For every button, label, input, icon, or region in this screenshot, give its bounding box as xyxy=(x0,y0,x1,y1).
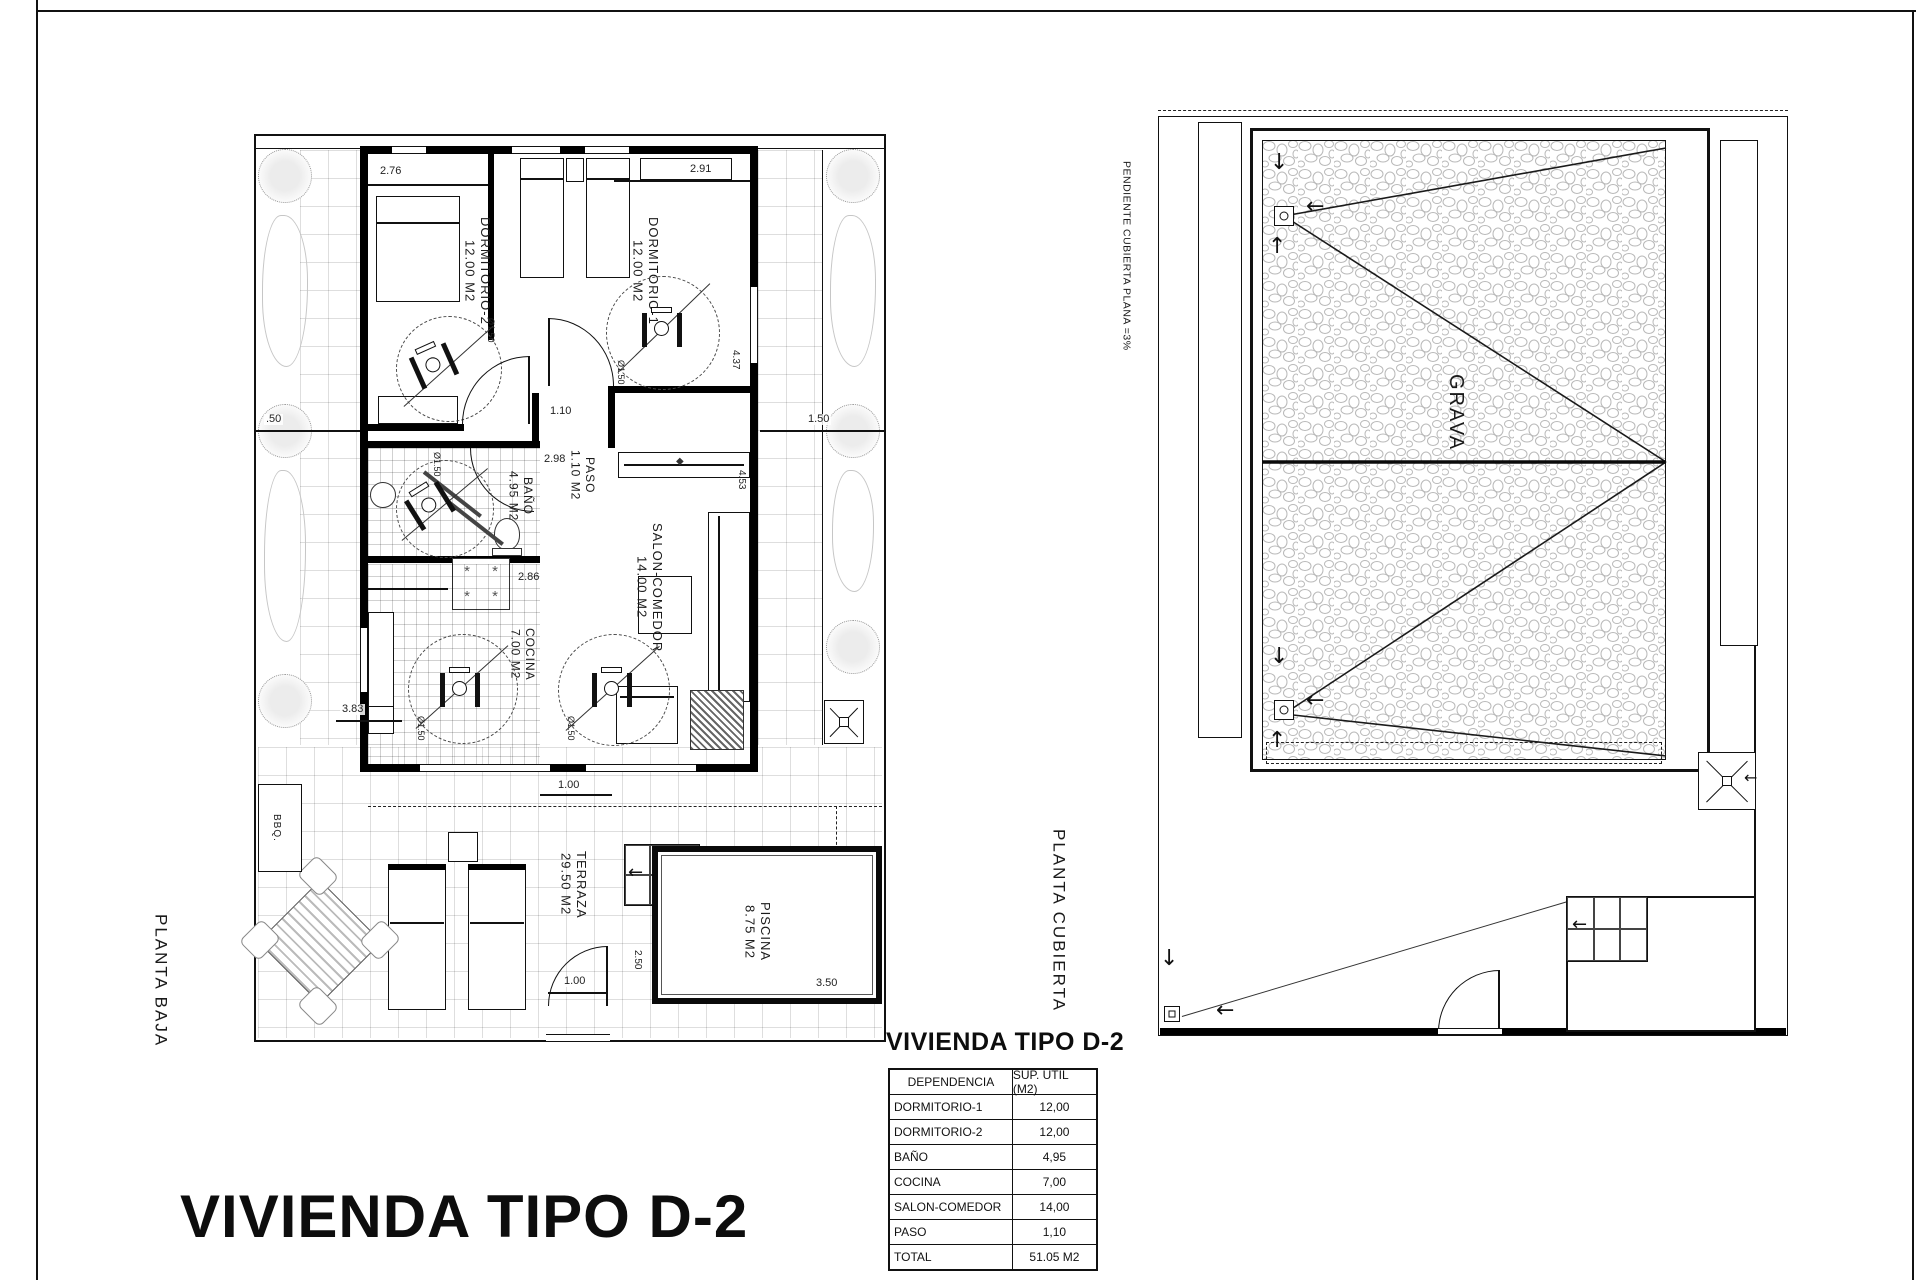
parapet-left xyxy=(1198,122,1242,738)
roof-overhang-dashed xyxy=(368,806,882,807)
dim-hall-len: 2.98 xyxy=(542,454,567,465)
frame-right xyxy=(1912,10,1914,1280)
plan-label-planta-cubierta: PLANTA CUBIERTA xyxy=(1048,826,1068,1016)
dim-paso-width: 1.10 xyxy=(548,406,573,417)
room-label-paso: PASO 1.10 M2 xyxy=(568,428,597,523)
door-leaf xyxy=(548,318,550,386)
dim-line xyxy=(760,430,884,432)
salon-sofa xyxy=(708,512,750,702)
sideboard-diamond-icon: ◆ xyxy=(676,456,684,467)
window xyxy=(392,146,426,154)
door-leaf xyxy=(528,356,530,424)
tree xyxy=(258,149,312,203)
dim-cocina-side: 3.83 xyxy=(340,704,365,715)
window xyxy=(586,764,696,772)
salon-plant xyxy=(690,690,744,750)
table-row: COCINA 7,00 xyxy=(890,1170,1096,1195)
dim-pool-side: 2.50 xyxy=(632,950,642,969)
garden-path-right xyxy=(758,150,822,745)
wall-bano-top xyxy=(368,441,540,448)
turning-radius-label: Ø1.50 xyxy=(432,452,441,477)
flow-arrow-down-icon: ↓ xyxy=(1160,948,1178,970)
wheelchair-symbol xyxy=(440,672,480,708)
dim-line xyxy=(540,794,612,796)
flow-arrow-up-icon: ↑ xyxy=(1268,236,1286,258)
sofa-cushion-line xyxy=(718,516,720,698)
dim-bed1-depth: 4.37 xyxy=(730,350,740,369)
bedroom2-bed xyxy=(376,196,460,302)
roof-dashed-zone xyxy=(1266,742,1662,764)
parapet-right xyxy=(1720,140,1758,646)
lounger-line xyxy=(390,922,444,924)
bed-pillow-line xyxy=(376,222,460,224)
sun-lounger xyxy=(468,868,526,1010)
table-row: PASO 1,10 xyxy=(890,1220,1096,1245)
bano-sink xyxy=(370,482,396,508)
flow-arrow-down-icon: ↓ xyxy=(1270,152,1288,174)
dim-left-margin: .50 xyxy=(264,414,283,425)
window xyxy=(512,146,560,154)
table-total-row: TOTAL 51.05 M2 xyxy=(890,1245,1096,1269)
sideboard-line xyxy=(624,464,744,466)
area-table: DEPENDENCIA SUP. UTIL (M2) DORMITORIO-1 … xyxy=(888,1068,1098,1271)
bedroom1-closet xyxy=(640,158,732,180)
roof-slope-lines xyxy=(1250,128,1710,776)
window xyxy=(360,628,368,692)
dim-line xyxy=(614,180,750,182)
shrub xyxy=(830,215,876,367)
table-header-sup-util: SUP. UTIL (M2) xyxy=(1013,1070,1096,1094)
stairs-arrow-icon: ← xyxy=(1572,916,1587,934)
side-table xyxy=(448,832,478,862)
shrub xyxy=(264,470,306,642)
flow-arrow-left-icon: ← xyxy=(1306,690,1324,712)
table-row: BAÑO 4,95 xyxy=(890,1145,1096,1170)
shrub xyxy=(832,470,874,592)
wall-paso-left xyxy=(532,393,539,448)
dim-rear-opening: 1.00 xyxy=(556,780,581,791)
drain-grate xyxy=(824,700,864,744)
dim-line xyxy=(548,992,608,994)
wheelchair-symbol xyxy=(642,312,682,348)
lounger-line xyxy=(470,922,524,924)
shrub xyxy=(262,215,308,367)
sliding-door xyxy=(420,764,550,772)
window xyxy=(750,287,758,363)
wall-bedroom2-bottom xyxy=(368,424,464,431)
turning-radius-label: Ø1.50 xyxy=(486,318,495,343)
table-row: DORMITORIO-2 12,00 xyxy=(890,1120,1096,1145)
bedroom1-bed xyxy=(586,158,630,278)
dim-pool-width: 3.50 xyxy=(814,978,839,989)
bed-pillow-line xyxy=(520,178,564,180)
flow-arrow-down-icon: ↓ xyxy=(1270,646,1288,668)
garden-right-edge xyxy=(822,150,823,745)
flow-arrow-up-icon: ↑ xyxy=(1268,730,1286,752)
wall-bedroom1-bottom xyxy=(614,386,750,393)
door-leaf xyxy=(606,946,608,1006)
bano-toilet-tank xyxy=(492,548,522,556)
room-label-terraza: TERRAZA 29.50 M2 xyxy=(558,822,589,947)
room-label-piscina: PISCINA 8.75 M2 xyxy=(742,878,773,986)
sheet-title: VIVIENDA TIPO D-2 xyxy=(180,1182,748,1251)
room-label-bano: BAÑO 4.95 M2 xyxy=(506,452,535,540)
tree xyxy=(826,149,880,203)
flow-arrow-left-icon: ← xyxy=(1744,770,1757,786)
garden-path-left xyxy=(300,150,362,745)
turning-radius-label: Ø1.50 xyxy=(616,360,625,385)
door-opening xyxy=(1438,1028,1502,1035)
dim-bed1-width: 2.91 xyxy=(688,164,713,175)
slope-note: PENDIENTE CUBIERTA PLANA =3% xyxy=(1120,146,1133,366)
flow-arrow-left-icon: ← xyxy=(1306,196,1324,218)
bbq-label: BBQ. xyxy=(270,800,282,856)
dim-salon-depth: 4.53 xyxy=(736,470,746,489)
dim-right-margin: 1.50 xyxy=(806,414,831,425)
turning-radius-label: Ø1.50 xyxy=(416,716,425,741)
frame-top xyxy=(36,10,1916,12)
frame-left xyxy=(36,0,38,1280)
wheelchair-symbol xyxy=(592,672,632,708)
house-wall-right xyxy=(750,146,758,772)
window xyxy=(585,146,629,154)
drawing-sheet: .50 1.50 2.76 DORMITORIO-2 12.00 M2 Ø1.5… xyxy=(0,0,1920,1280)
corner-drain xyxy=(1164,1006,1180,1022)
roof-overhang-dashed-v xyxy=(836,806,837,850)
wall-paso-right xyxy=(608,386,615,448)
table-title: VIVIENDA TIPO D-2 xyxy=(886,1028,1124,1057)
dim-terrace-door: 1.00 xyxy=(562,976,587,987)
cocina-counter xyxy=(368,612,394,708)
tree xyxy=(826,620,880,674)
lounger-headrest xyxy=(468,864,526,870)
tree xyxy=(258,674,312,728)
table-row: SALON-COMEDOR 14,00 xyxy=(890,1195,1096,1220)
turning-radius-label: Ø1.50 xyxy=(566,716,575,741)
stairs-arrow-icon: ← xyxy=(628,864,643,882)
dim-line xyxy=(368,184,488,186)
table-header-dependencia: DEPENDENCIA xyxy=(890,1070,1013,1094)
roof-drain xyxy=(1274,700,1294,720)
plan-label-planta-baja: PLANTA BAJA xyxy=(150,898,170,1063)
bedroom1-bed xyxy=(520,158,564,278)
bedroom1-nightstand xyxy=(566,158,584,182)
roof-drain xyxy=(1274,206,1294,226)
dim-line xyxy=(336,720,402,722)
property-dashdot-line xyxy=(1158,110,1788,111)
dim-line xyxy=(256,430,362,432)
gravel-label: GRAVA xyxy=(1444,348,1468,478)
table-row: DORMITORIO-1 12,00 xyxy=(890,1095,1096,1120)
dim-bed2-width: 2.76 xyxy=(378,166,403,177)
lounger-headrest xyxy=(388,864,446,870)
table-header-row: DEPENDENCIA SUP. UTIL (M2) xyxy=(890,1070,1096,1095)
gate-opening xyxy=(546,1034,610,1042)
door-leaf xyxy=(1498,970,1500,1032)
